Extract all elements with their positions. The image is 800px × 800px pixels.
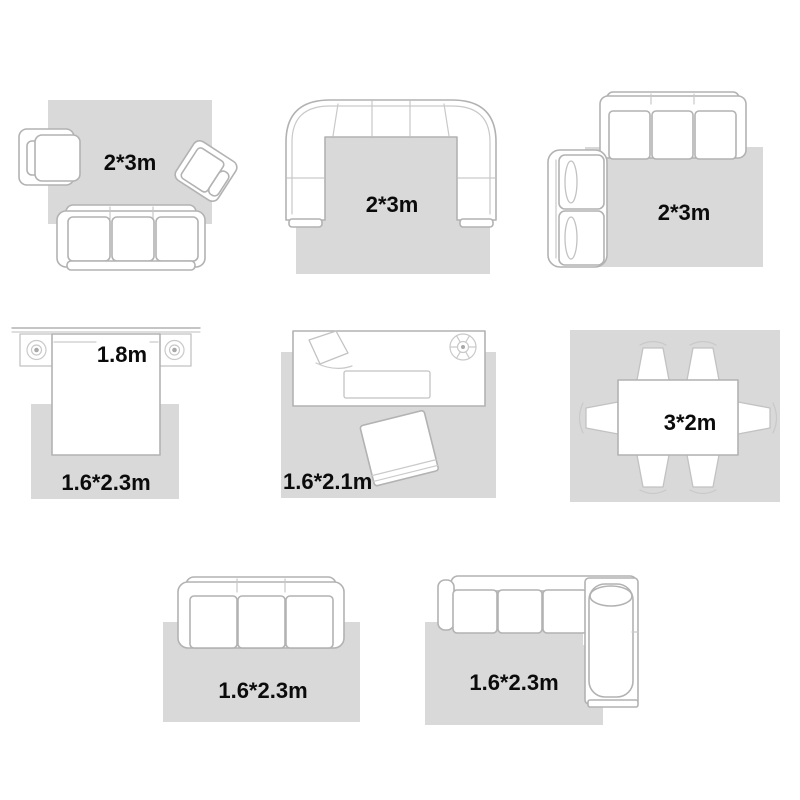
rug-size-label: 1.6*2.3m	[61, 470, 150, 495]
keyboard-icon	[344, 371, 430, 398]
bolster-cushion	[565, 161, 577, 203]
table-size-label: 3*2m	[664, 410, 717, 435]
rug-size-label: 1.6*2.3m	[218, 678, 307, 703]
layout-bedroom-bed: 1.8m 1.6*2.3m	[12, 328, 200, 499]
three-seat-sofa-icon	[57, 205, 205, 270]
armchair-icon	[19, 129, 80, 185]
rug-size-label: 1.6*2.1m	[283, 469, 372, 494]
layout-dining-table: 3*2m	[570, 330, 780, 502]
layout-living-room-u-sectional: 2*3m	[286, 100, 496, 274]
rug-size-label: 2*3m	[658, 200, 711, 225]
rug-size-guide: 2*3m 2*3m	[0, 0, 800, 800]
bolster-cushion	[565, 217, 577, 259]
rug-size-label: 2*3m	[366, 192, 419, 217]
layout-living-room-sofa-two-armchairs: 2*3m	[19, 100, 239, 270]
rug-size-label: 1.6*2.3m	[469, 670, 558, 695]
loveseat-icon	[548, 150, 607, 267]
three-seat-sofa-icon	[600, 92, 746, 159]
bed-width-label: 1.8m	[97, 342, 147, 367]
bolster-pillow-icon	[590, 586, 632, 606]
nightstand-lamp-icon	[20, 334, 53, 366]
rug-size-guide-drawing: 2*3m 2*3m	[0, 0, 800, 800]
rug-size-label: 2*3m	[104, 150, 157, 175]
layout-office-desk: 1.6*2.1m	[281, 331, 496, 498]
three-seat-sofa-icon	[178, 577, 344, 648]
layout-living-room-sofa-and-loveseat: 2*3m	[548, 92, 763, 267]
layout-l-shaped-sectional: 1.6*2.3m	[425, 576, 638, 725]
nightstand-lamp-icon	[158, 334, 191, 366]
layout-three-seat-sofa: 1.6*2.3m	[163, 577, 360, 722]
